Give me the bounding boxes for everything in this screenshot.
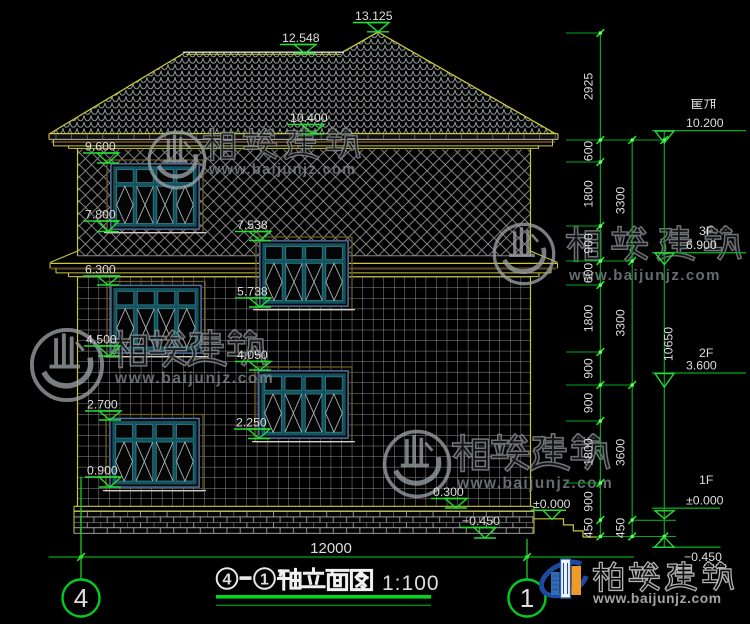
svg-text:www.baijunjz.com: www.baijunjz.com — [208, 162, 357, 178]
svg-text:−0.450: −0.450 — [462, 514, 500, 528]
svg-text:2.700: 2.700 — [87, 398, 118, 412]
svg-text:5.738: 5.738 — [237, 285, 268, 299]
svg-text:www.baijunjz.com: www.baijunjz.com — [592, 591, 722, 606]
svg-text:0.300: 0.300 — [433, 485, 464, 499]
svg-text:1800: 1800 — [582, 438, 596, 466]
svg-text:3300: 3300 — [614, 187, 628, 215]
svg-text:6.900: 6.900 — [686, 238, 717, 252]
svg-text:600: 600 — [582, 263, 596, 284]
svg-text:2925: 2925 — [582, 73, 596, 101]
svg-text:4.500: 4.500 — [86, 333, 117, 347]
svg-text:900: 900 — [582, 358, 596, 379]
svg-text:0.900: 0.900 — [87, 464, 118, 478]
svg-text:9.600: 9.600 — [85, 140, 116, 154]
svg-text:−0.450: −0.450 — [684, 550, 722, 564]
svg-text:450: 450 — [582, 518, 596, 539]
svg-text:1F: 1F — [699, 473, 714, 487]
svg-text:4: 4 — [74, 583, 88, 613]
svg-text:900: 900 — [582, 491, 596, 512]
svg-text:3300: 3300 — [614, 309, 628, 337]
svg-text:13.125: 13.125 — [355, 9, 393, 23]
svg-text:7.538: 7.538 — [237, 218, 268, 232]
svg-text:1:100: 1:100 — [382, 572, 440, 595]
svg-text:4.050: 4.050 — [237, 348, 268, 362]
svg-text:1: 1 — [520, 583, 534, 613]
svg-text:600: 600 — [582, 141, 596, 162]
svg-text:±0.000: ±0.000 — [533, 497, 571, 511]
svg-text:www.baijunjz.com: www.baijunjz.com — [114, 370, 274, 387]
svg-text:12000: 12000 — [310, 540, 352, 557]
svg-text:900: 900 — [582, 393, 596, 414]
svg-text:1800: 1800 — [582, 305, 596, 333]
svg-text:3.600: 3.600 — [686, 359, 717, 373]
svg-text:7.800: 7.800 — [85, 208, 116, 222]
svg-text:2.250: 2.250 — [236, 416, 267, 430]
svg-text:450: 450 — [614, 518, 628, 539]
svg-text:4: 4 — [223, 572, 232, 589]
svg-text:1: 1 — [260, 572, 269, 589]
svg-text:12.548: 12.548 — [282, 31, 320, 45]
svg-text:10.400: 10.400 — [290, 111, 328, 125]
svg-text:±0.000: ±0.000 — [686, 494, 724, 508]
svg-text:3600: 3600 — [614, 439, 628, 467]
svg-text:1800: 1800 — [582, 180, 596, 208]
svg-text:10.200: 10.200 — [686, 116, 724, 130]
svg-text:3F: 3F — [699, 224, 714, 238]
svg-text:900: 900 — [582, 233, 596, 254]
svg-text:6.300: 6.300 — [85, 263, 116, 277]
svg-text:10650: 10650 — [662, 327, 676, 361]
